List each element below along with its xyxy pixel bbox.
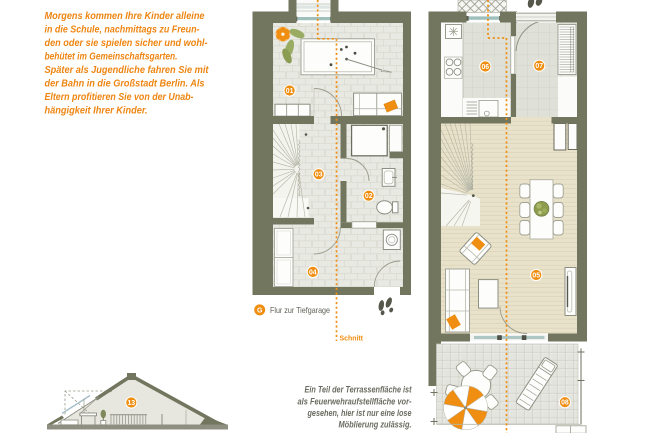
svg-text:Schnitt: Schnitt [340, 334, 364, 343]
svg-text:Flur zur Tiefgarage: Flur zur Tiefgarage [270, 305, 330, 315]
svg-text:den oder sie spielen sicher un: den oder sie spielen sicher und wohl- [45, 38, 209, 49]
svg-text:G: G [257, 307, 263, 314]
svg-text:in die Schule, nachmittags zu: in die Schule, nachmittags zu Freun- [45, 25, 201, 36]
svg-text:Eltern profitieren Sie von der: Eltern profitieren Sie von der Unab- [45, 92, 195, 103]
svg-text:04: 04 [309, 269, 317, 276]
svg-text:Ein Teil der Terrassenfläche i: Ein Teil der Terrassenfläche ist [305, 385, 413, 396]
svg-text:der Bahn in die Großstadt Berl: der Bahn in die Großstadt Berlin. Als [45, 79, 205, 90]
svg-text:07: 07 [535, 63, 543, 70]
svg-text:13: 13 [127, 400, 135, 407]
svg-text:hängigkeit Ihrer Kinder.: hängigkeit Ihrer Kinder. [45, 105, 148, 116]
svg-text:gesehen, hier ist nur eine los: gesehen, hier ist nur eine lose [307, 408, 412, 419]
svg-text:02: 02 [365, 193, 373, 200]
svg-text:Möblierung zulässig.: Möblierung zulässig. [339, 420, 412, 431]
svg-text:behütet im Gemeinschaftsgarten: behütet im Gemeinschaftsgarten. [45, 52, 178, 63]
svg-text:08: 08 [561, 400, 569, 407]
svg-text:als Feuerwehraufstellfläche vo: als Feuerwehraufstellfläche vor- [298, 396, 412, 407]
svg-text:Morgens kommen Ihre Kinder all: Morgens kommen Ihre Kinder alleine [45, 11, 205, 22]
svg-text:Später als Jugendliche fahren: Später als Jugendliche fahren Sie mit [45, 65, 210, 76]
svg-text:05: 05 [532, 273, 540, 280]
svg-text:06: 06 [481, 64, 489, 71]
svg-text:01: 01 [286, 88, 294, 95]
svg-text:03: 03 [315, 172, 323, 179]
